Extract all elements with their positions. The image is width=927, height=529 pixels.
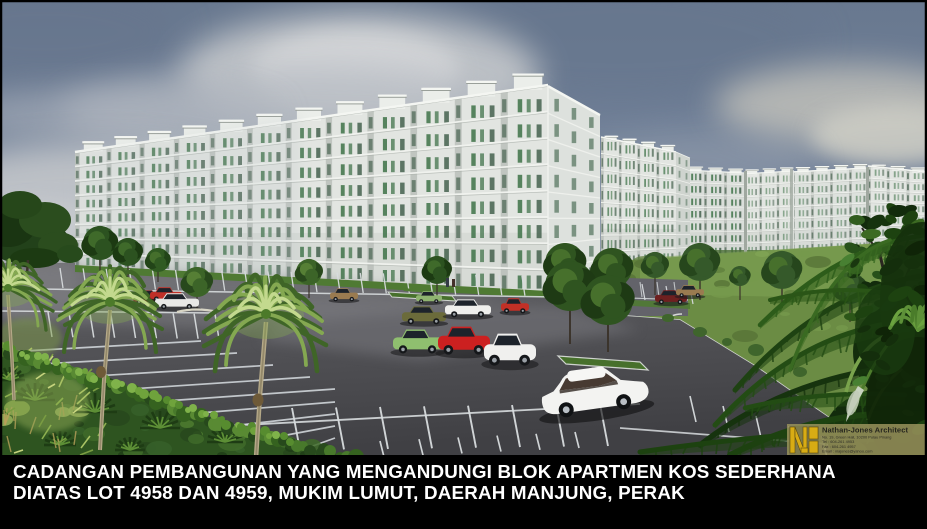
svg-text:Nathan-Jones Architect: Nathan-Jones Architect xyxy=(822,426,908,435)
svg-text:Email : niajones@yahoo.com: Email : niajones@yahoo.com xyxy=(822,449,872,454)
